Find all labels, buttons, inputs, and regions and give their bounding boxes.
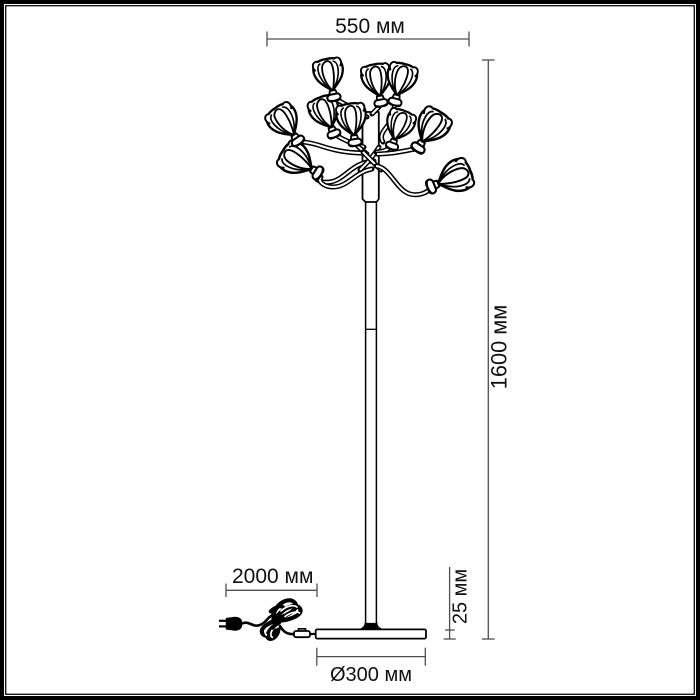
svg-text:2000 мм: 2000 мм — [232, 565, 313, 588]
svg-text:550 мм: 550 мм — [335, 15, 405, 38]
svg-text:25 мм: 25 мм — [450, 569, 472, 624]
svg-text:1600 мм: 1600 мм — [487, 305, 512, 390]
svg-text:Ø300 мм: Ø300 мм — [330, 664, 412, 686]
